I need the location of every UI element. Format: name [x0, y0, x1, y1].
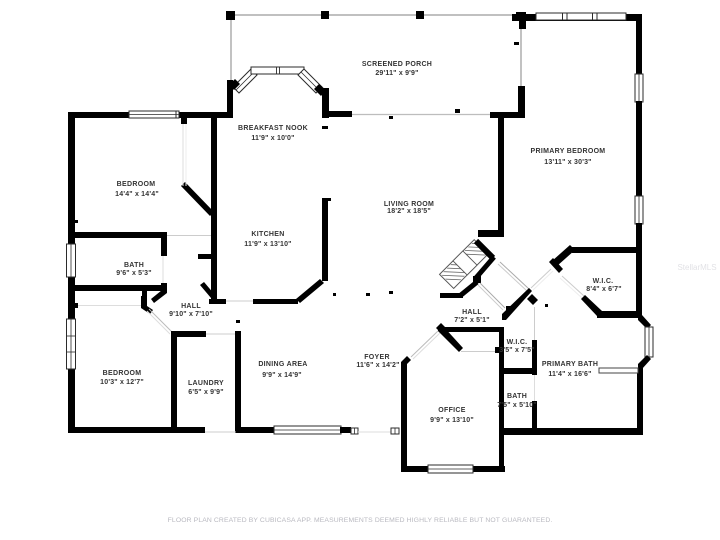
svg-text:LAUNDRY: LAUNDRY [188, 380, 224, 387]
svg-text:BEDROOM: BEDROOM [103, 370, 142, 377]
svg-text:HALL: HALL [462, 309, 482, 316]
svg-text:9'9" x 13'10": 9'9" x 13'10" [430, 417, 474, 424]
svg-text:6'5" x 9'9": 6'5" x 9'9" [188, 389, 224, 396]
svg-text:FLOOR PLAN CREATED BY CUBICASA: FLOOR PLAN CREATED BY CUBICASA APP. MEAS… [168, 517, 553, 524]
svg-text:13'11" x 30'3": 13'11" x 30'3" [544, 159, 591, 166]
svg-text:W.I.C.: W.I.C. [507, 339, 528, 346]
svg-text:SCREENED PORCH: SCREENED PORCH [362, 61, 432, 68]
svg-text:OFFICE: OFFICE [438, 407, 465, 414]
svg-text:KITCHEN: KITCHEN [251, 231, 284, 238]
svg-text:11'6" x 14'2": 11'6" x 14'2" [356, 362, 399, 369]
svg-text:7'5" x 5'10": 7'5" x 5'10" [497, 402, 537, 409]
svg-text:8'4" x 6'7": 8'4" x 6'7" [586, 286, 622, 293]
svg-text:11'9" x 10'0": 11'9" x 10'0" [251, 135, 294, 142]
svg-text:9'10" x 7'10": 9'10" x 7'10" [169, 311, 213, 318]
svg-text:BATH: BATH [124, 262, 144, 269]
svg-text:BEDROOM: BEDROOM [117, 181, 156, 188]
svg-text:11'4" x 16'6": 11'4" x 16'6" [548, 371, 591, 378]
svg-text:BREAKFAST NOOK: BREAKFAST NOOK [238, 125, 308, 132]
svg-text:HALL: HALL [181, 303, 201, 310]
svg-text:9'9" x 14'9": 9'9" x 14'9" [262, 372, 302, 379]
svg-text:BATH: BATH [507, 393, 527, 400]
svg-text:LIVING ROOM: LIVING ROOM [384, 201, 434, 208]
svg-text:29'11" x 9'9": 29'11" x 9'9" [375, 70, 418, 77]
svg-text:11'9" x 13'10": 11'9" x 13'10" [244, 241, 291, 248]
svg-text:PRIMARY BATH: PRIMARY BATH [542, 361, 598, 368]
svg-text:18'2" x 18'5": 18'2" x 18'5" [387, 208, 431, 215]
svg-text:StellarMLS: StellarMLS [677, 263, 716, 272]
svg-text:PRIMARY BEDROOM: PRIMARY BEDROOM [531, 148, 606, 155]
svg-text:W.I.C.: W.I.C. [593, 278, 614, 285]
svg-text:14'4" x 14'4": 14'4" x 14'4" [115, 191, 159, 198]
svg-text:DINING AREA: DINING AREA [258, 361, 307, 368]
svg-text:FOYER: FOYER [364, 354, 390, 361]
svg-text:10'3" x 12'7": 10'3" x 12'7" [100, 379, 144, 386]
svg-text:7'2" x 5'1": 7'2" x 5'1" [454, 317, 490, 324]
svg-text:3'5" x 7'5": 3'5" x 7'5" [499, 347, 535, 354]
svg-text:9'6" x 5'3": 9'6" x 5'3" [116, 270, 152, 277]
